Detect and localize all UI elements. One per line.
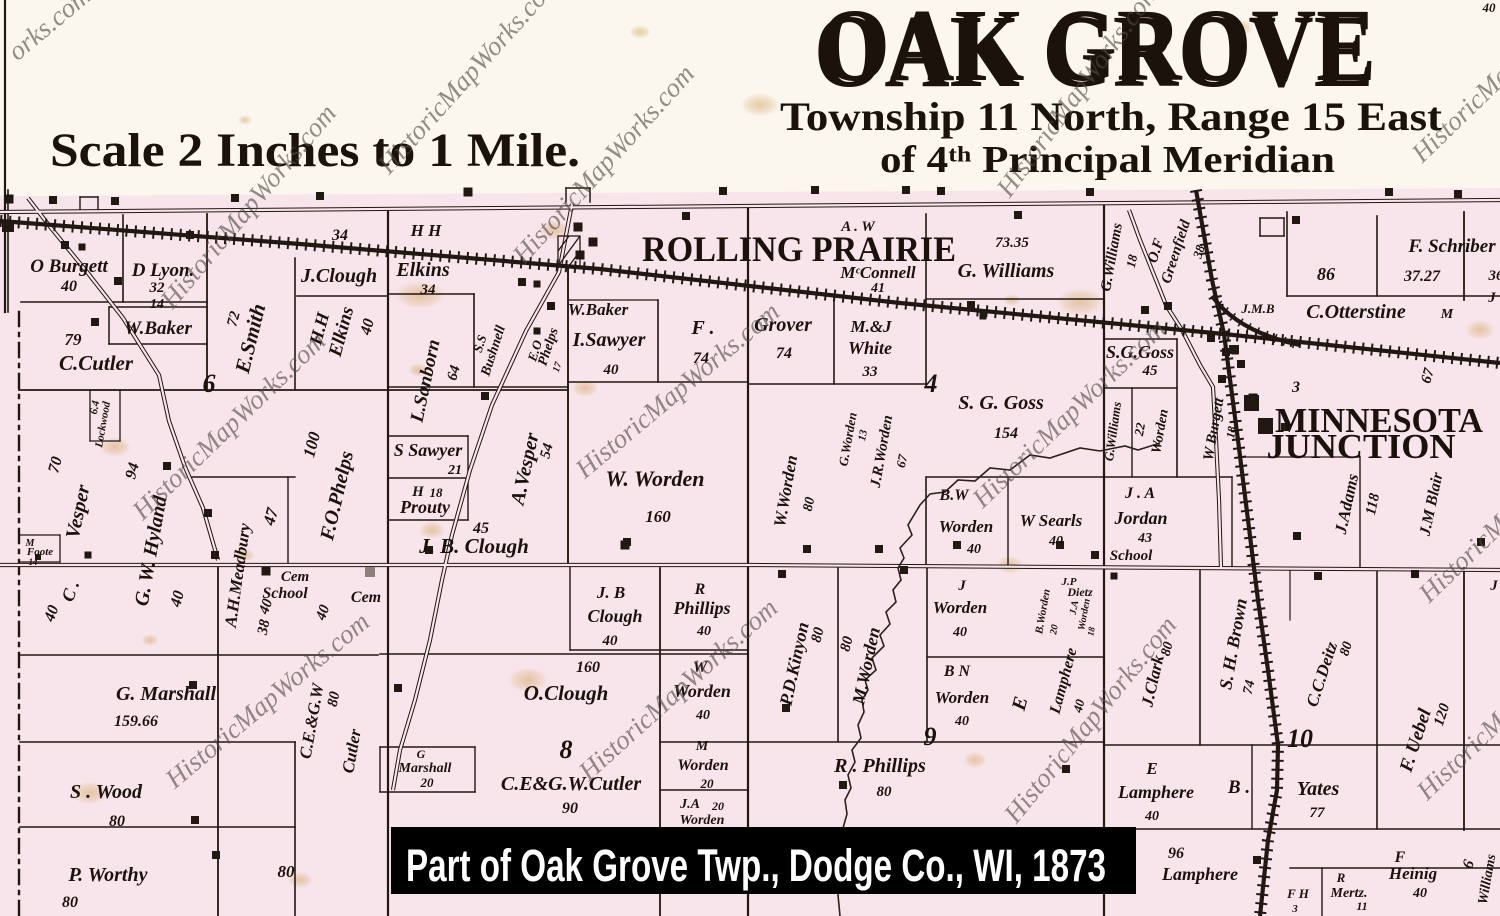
svg-text:W Searls: W Searls	[1020, 511, 1083, 530]
svg-text:20: 20	[700, 776, 715, 791]
svg-text:Prouty: Prouty	[399, 497, 451, 517]
svg-text:41: 41	[870, 281, 885, 296]
svg-text:S. G. Goss: S. G. Goss	[958, 392, 1044, 414]
svg-text:J. B. Clough: J. B. Clough	[418, 534, 529, 558]
svg-text:Worden: Worden	[939, 517, 993, 536]
svg-text:O.Clough: O.Clough	[524, 681, 609, 705]
svg-text:74: 74	[776, 345, 792, 362]
svg-text:40: 40	[695, 708, 710, 723]
svg-text:S . Wood: S . Wood	[70, 781, 143, 803]
svg-text:M: M	[695, 739, 709, 754]
svg-text:9: 9	[924, 722, 937, 751]
svg-text:R: R	[694, 581, 706, 598]
svg-text:43: 43	[1137, 531, 1152, 546]
svg-text:J.A: J.A	[679, 797, 700, 812]
svg-text:F H: F H	[1286, 886, 1310, 901]
svg-text:79: 79	[65, 330, 83, 349]
svg-text:O Burgett: O Burgett	[30, 256, 108, 277]
svg-text:Jordan: Jordan	[1113, 508, 1167, 528]
svg-text:80: 80	[109, 813, 125, 830]
svg-text:Heinig: Heinig	[1388, 864, 1438, 883]
svg-text:Worden: Worden	[935, 688, 989, 707]
svg-text:90: 90	[562, 800, 578, 817]
svg-text:Cem: Cem	[351, 589, 381, 606]
svg-text:159.66: 159.66	[114, 713, 158, 730]
svg-text:G. Marshall: G. Marshall	[116, 683, 216, 705]
svg-text:Lamphere: Lamphere	[1117, 782, 1194, 802]
svg-text:40: 40	[1482, 0, 1497, 15]
svg-text:C.E&G.W.Cutler: C.E&G.W.Cutler	[501, 773, 641, 795]
svg-text:F .: F .	[691, 317, 715, 339]
svg-text:18: 18	[1223, 425, 1239, 439]
svg-text:W. Worden: W. Worden	[605, 466, 704, 491]
svg-text:8: 8	[560, 735, 573, 764]
svg-text:80: 80	[62, 894, 78, 911]
svg-text:White: White	[848, 338, 892, 358]
svg-text:C.Otterstine: C.Otterstine	[1306, 301, 1406, 323]
svg-text:37.27: 37.27	[1403, 268, 1441, 285]
svg-text:J.M.B: J.M.B	[1240, 301, 1275, 316]
svg-text:160: 160	[576, 659, 600, 676]
svg-text:80: 80	[877, 784, 893, 800]
svg-text:J: J	[1487, 290, 1496, 306]
svg-text:3: 3	[1291, 379, 1300, 396]
svg-text:of 4ᵗʰ Principal Meridian: of 4ᵗʰ Principal Meridian	[880, 139, 1335, 181]
svg-text:86: 86	[1317, 264, 1335, 284]
svg-text:Clough: Clough	[587, 606, 642, 626]
svg-text:School: School	[262, 585, 308, 602]
svg-text:E: E	[1145, 759, 1157, 778]
svg-text:96: 96	[1168, 845, 1184, 862]
svg-text:Worden: Worden	[677, 757, 728, 774]
svg-text:Township 11 North, Range 15 Ea: Township 11 North, Range 15 East	[780, 94, 1443, 139]
svg-text:40: 40	[966, 542, 981, 557]
svg-text:40: 40	[1144, 809, 1159, 824]
svg-text:JUNCTION: JUNCTION	[1267, 427, 1456, 466]
svg-text:J.Clough: J.Clough	[300, 265, 377, 287]
svg-text:3: 3	[1291, 903, 1298, 915]
svg-text:B N: B N	[943, 663, 972, 680]
svg-text:40: 40	[696, 624, 711, 639]
svg-text:Dietz: Dietz	[1066, 585, 1093, 599]
svg-text:Elkins: Elkins	[395, 259, 450, 281]
svg-text:Yates: Yates	[1297, 778, 1340, 800]
svg-text:I.Sawyer: I.Sawyer	[572, 329, 646, 351]
svg-text:40: 40	[1048, 534, 1063, 549]
svg-text:33: 33	[862, 364, 879, 380]
svg-text:ROLLING PRAIRIE: ROLLING PRAIRIE	[642, 229, 956, 269]
svg-text:40: 40	[954, 714, 969, 729]
svg-text:J: J	[1489, 578, 1498, 594]
svg-text:77: 77	[1310, 805, 1326, 821]
svg-text:R: R	[1336, 870, 1346, 885]
svg-text:P. Worthy: P. Worthy	[68, 864, 148, 886]
svg-text:Cem: Cem	[281, 569, 309, 585]
svg-text:40: 40	[1412, 886, 1427, 901]
svg-text:H H: H H	[410, 221, 442, 240]
svg-text:40: 40	[603, 362, 620, 378]
svg-text:154: 154	[994, 425, 1018, 442]
svg-text:S Sawyer: S Sawyer	[394, 440, 464, 460]
svg-text:11: 11	[1356, 899, 1367, 913]
svg-text:Worden: Worden	[680, 813, 725, 828]
svg-text:10: 10	[1287, 724, 1313, 753]
svg-text:School: School	[1110, 548, 1153, 564]
svg-text:6: 6	[203, 369, 216, 398]
svg-text:40: 40	[60, 278, 77, 295]
svg-text:40: 40	[952, 625, 967, 640]
svg-text:B.W: B.W	[939, 487, 971, 504]
svg-text:40: 40	[602, 633, 619, 649]
svg-text:Phillips: Phillips	[672, 598, 730, 618]
svg-text:14: 14	[29, 557, 39, 567]
svg-text:45: 45	[1142, 363, 1159, 379]
svg-text:73.35: 73.35	[995, 235, 1029, 251]
svg-text:M: M	[1440, 307, 1454, 322]
svg-text:Worden: Worden	[933, 598, 987, 617]
svg-text:20: 20	[1048, 624, 1061, 637]
svg-text:J. B: J. B	[596, 583, 625, 602]
svg-text:21: 21	[447, 463, 462, 478]
svg-text:R . Phillips: R . Phillips	[833, 755, 926, 777]
svg-text:20: 20	[420, 775, 435, 790]
svg-text:80: 80	[278, 862, 296, 881]
svg-text:34: 34	[331, 227, 348, 244]
svg-text:W.Baker: W.Baker	[124, 318, 192, 339]
svg-text:Marshall: Marshall	[398, 761, 452, 776]
svg-text:J . A: J . A	[1124, 485, 1155, 502]
svg-text:M.&J: M.&J	[849, 317, 892, 336]
svg-text:34: 34	[420, 282, 437, 298]
svg-text:4: 4	[924, 369, 938, 398]
svg-text:36: 36	[1488, 268, 1500, 284]
svg-text:160: 160	[645, 507, 671, 526]
svg-text:G. Williams: G. Williams	[958, 260, 1055, 282]
svg-text:G: G	[417, 747, 426, 761]
svg-text:B .: B .	[1227, 777, 1250, 798]
svg-text:20: 20	[711, 799, 724, 813]
svg-text:Part of Oak Grove Twp., Dodge: Part of Oak Grove Twp., Dodge Co., WI, 1…	[406, 840, 1106, 891]
svg-text:W.Baker: W.Baker	[568, 300, 629, 319]
svg-text:C.Cutler: C.Cutler	[59, 351, 134, 375]
svg-text:J: J	[957, 578, 966, 594]
svg-text:Lamphere: Lamphere	[1161, 864, 1238, 884]
svg-text:F. Schriber: F. Schriber	[1407, 236, 1496, 257]
